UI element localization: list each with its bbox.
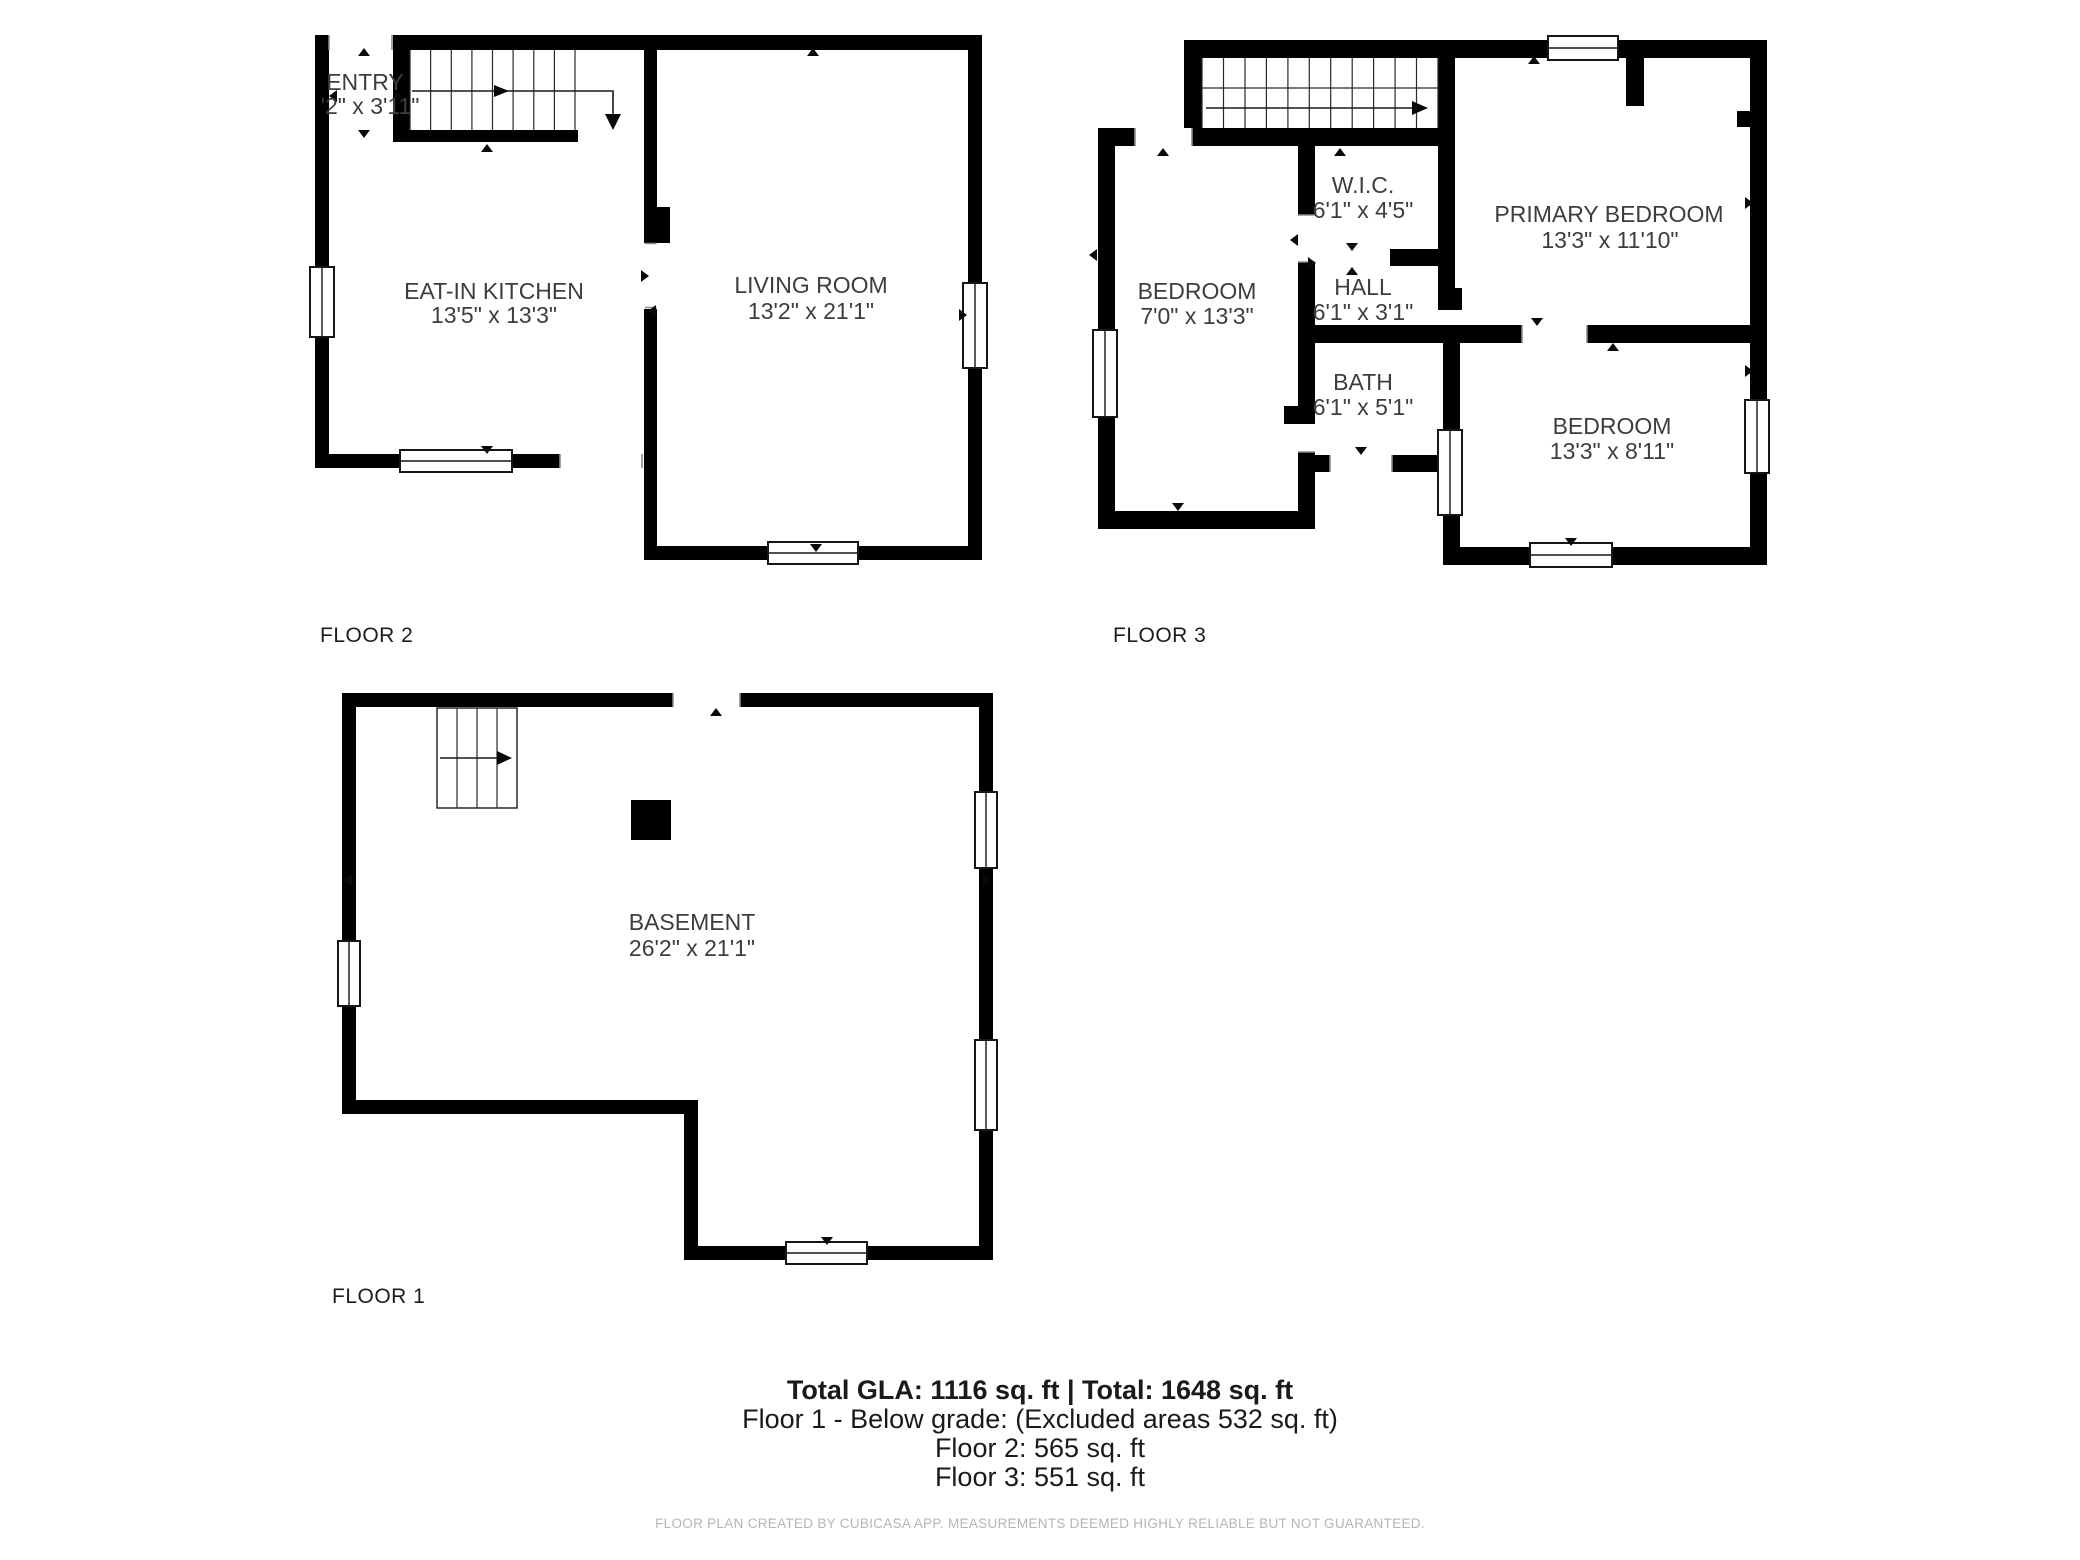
- stairs-floor2: [410, 50, 621, 130]
- room-dimensions: 6'1" x 3'1": [1313, 299, 1414, 325]
- room-bath: BATH 6'1" x 5'1": [1313, 369, 1414, 420]
- room-dimensions: 13'3" x 11'10": [1541, 227, 1678, 253]
- door-marker-right-icon: [641, 270, 649, 282]
- room-dimensions: 6'1" x 4'5": [1313, 197, 1414, 223]
- window: [400, 450, 512, 472]
- room-dimensions: 13'5" x 13'3": [431, 302, 557, 328]
- door-marker-down-icon: [1355, 447, 1367, 455]
- window: [1530, 543, 1612, 567]
- room-label: BASEMENT: [629, 909, 756, 935]
- room-label: HALL: [1334, 274, 1392, 300]
- summary-footer: Total GLA: 1116 sq. ft | Total: 1648 sq.…: [0, 1376, 2080, 1531]
- room-label: ENTRY: [326, 69, 404, 95]
- stair-treads: [1202, 58, 1438, 128]
- floor2-plan: ENTRY '2" x 3'11" EAT-IN KITCHEN 13'5" x…: [310, 35, 987, 647]
- window: [975, 1040, 997, 1130]
- window: [786, 1242, 867, 1264]
- door-marker-up-icon: [1607, 343, 1619, 351]
- window: [1548, 36, 1618, 60]
- floor1-windows: [338, 792, 997, 1264]
- room-label: W.I.C.: [1332, 172, 1395, 198]
- stair-arrow-down-icon: [605, 114, 621, 130]
- floor1-area-line: Floor 1 - Below grade: (Excluded areas 5…: [0, 1405, 2080, 1434]
- room-label: BATH: [1333, 369, 1393, 395]
- room-dimensions: '2" x 3'11": [321, 93, 420, 119]
- room-hall: HALL 6'1" x 3'1": [1313, 274, 1414, 325]
- room-basement: BASEMENT 26'2" x 21'1": [629, 909, 756, 961]
- room-dimensions: 7'0" x 13'3": [1140, 303, 1253, 329]
- chimney-block: [644, 207, 670, 243]
- floor1-plan: BASEMENT 26'2" x 21'1" FLOOR 1: [332, 693, 997, 1308]
- floor3-area-line: Floor 3: 551 sq. ft: [0, 1463, 2080, 1492]
- room-dimensions: 13'2" x 21'1": [748, 298, 874, 324]
- room-label: BEDROOM: [1138, 278, 1257, 304]
- stair-treads: [410, 50, 575, 130]
- window: [1438, 430, 1462, 515]
- room-label: PRIMARY BEDROOM: [1494, 201, 1723, 227]
- floor-plan-canvas: ENTRY '2" x 3'11" EAT-IN KITCHEN 13'5" x…: [0, 0, 2080, 1560]
- window: [1745, 400, 1769, 473]
- stair-arrow-right-icon: [1412, 101, 1428, 115]
- door-marker-down-icon: [1172, 503, 1184, 511]
- room-dimensions: 6'1" x 5'1": [1313, 394, 1414, 420]
- door-opening-jambs: [673, 693, 740, 707]
- room-primary-bedroom: PRIMARY BEDROOM 13'3" x 11'10": [1494, 201, 1723, 253]
- window: [310, 267, 334, 337]
- door-marker-down-icon: [358, 130, 370, 138]
- room-dimensions: 26'2" x 21'1": [629, 935, 755, 961]
- stairs-floor3: [1202, 58, 1438, 128]
- floor1-label: FLOOR 1: [332, 1285, 425, 1308]
- floor2-label: FLOOR 2: [320, 624, 413, 647]
- window: [975, 792, 997, 868]
- room-dimensions: 13'3" x 8'11": [1550, 438, 1674, 464]
- door-marker-up-icon: [710, 708, 722, 716]
- room-bedroom-left: BEDROOM 7'0" x 13'3": [1138, 278, 1257, 329]
- room-living-room: LIVING ROOM 13'2" x 21'1": [734, 272, 887, 324]
- room-label: EAT-IN KITCHEN: [404, 278, 584, 304]
- room-eat-in-kitchen: EAT-IN KITCHEN 13'5" x 13'3": [404, 278, 584, 328]
- door-marker-left-icon: [1290, 234, 1298, 246]
- floor3-label: FLOOR 3: [1113, 624, 1206, 647]
- door-marker-up-icon: [1157, 148, 1169, 156]
- window: [963, 283, 987, 368]
- window: [338, 941, 360, 1006]
- room-label: LIVING ROOM: [734, 272, 887, 298]
- room-bedroom-right: BEDROOM 13'3" x 8'11": [1550, 413, 1674, 464]
- door-marker-down-icon: [1346, 243, 1358, 251]
- room-wic: W.I.C. 6'1" x 4'5": [1313, 172, 1414, 223]
- door-marker-down-icon: [1531, 318, 1543, 326]
- stair-arrow-right-icon: [494, 85, 509, 97]
- total-gla-line: Total GLA: 1116 sq. ft | Total: 1648 sq.…: [0, 1376, 2080, 1405]
- window: [1093, 330, 1117, 417]
- room-label: BEDROOM: [1553, 413, 1672, 439]
- door-marker-up-icon: [1334, 148, 1346, 156]
- door-marker-up-icon: [481, 144, 493, 152]
- floor2-area-line: Floor 2: 565 sq. ft: [0, 1434, 2080, 1463]
- door-marker-left-icon: [1089, 249, 1097, 261]
- stairs-floor1: [437, 708, 517, 808]
- support-post-block: [631, 800, 671, 840]
- disclaimer-text: FLOOR PLAN CREATED BY CUBICASA APP. MEAS…: [0, 1516, 2080, 1531]
- floor3-plan: BEDROOM 7'0" x 13'3" W.I.C. 6'1" x 4'5" …: [1089, 36, 1769, 647]
- door-marker-up-icon: [358, 48, 370, 56]
